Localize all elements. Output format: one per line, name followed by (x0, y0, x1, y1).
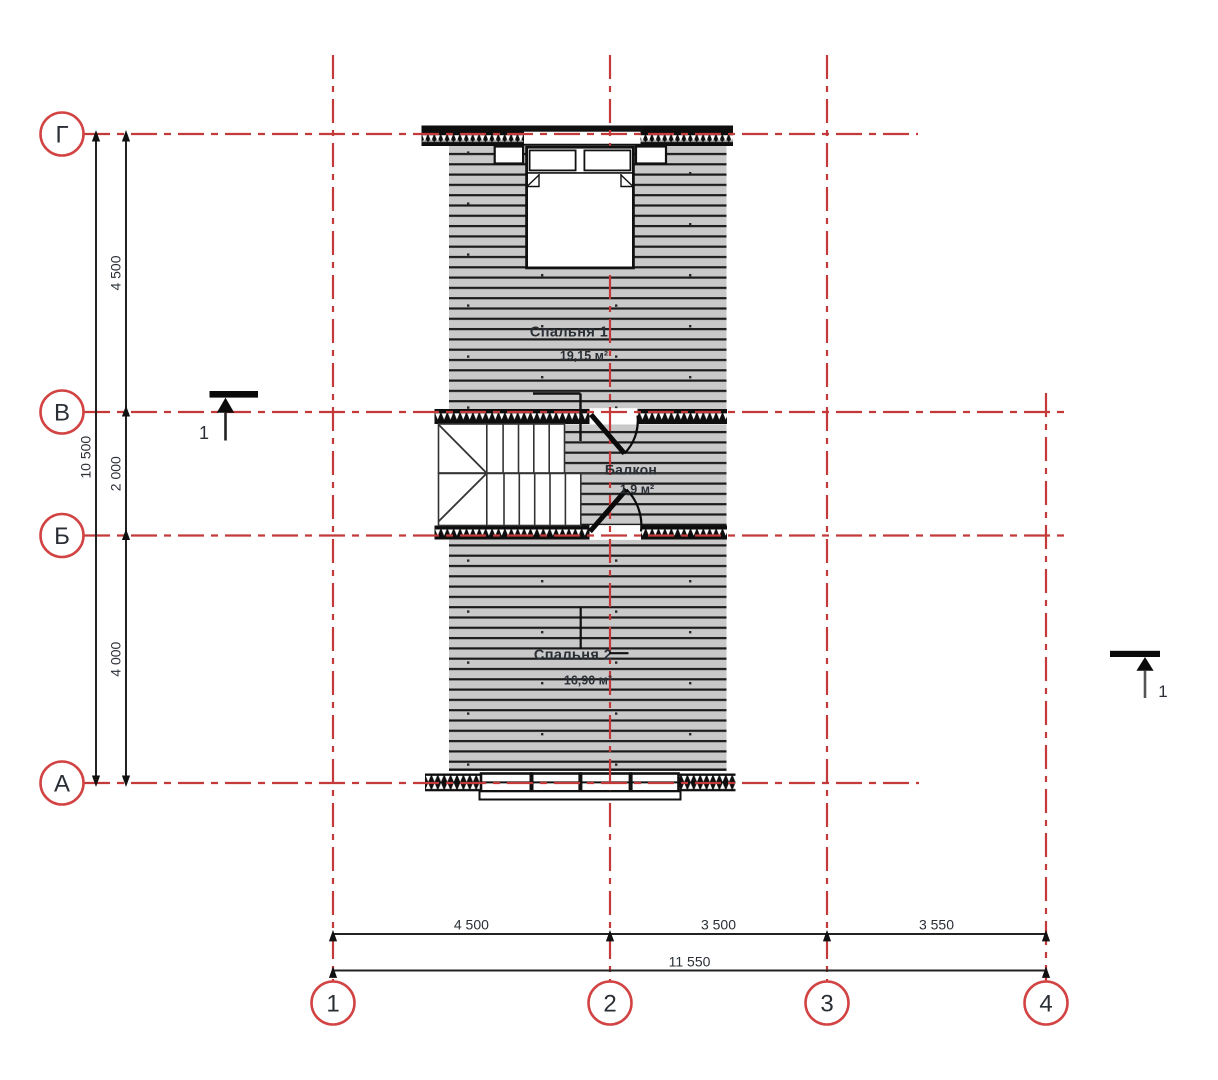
svg-text:2: 2 (603, 991, 616, 1018)
svg-text:1: 1 (1158, 682, 1167, 701)
svg-text:11 550: 11 550 (669, 954, 711, 970)
svg-text:Спальня 2: Спальня 2 (534, 648, 612, 664)
svg-text:4 500: 4 500 (454, 917, 489, 933)
svg-text:4 500: 4 500 (108, 255, 124, 290)
svg-text:Спальня 1: Спальня 1 (530, 325, 608, 341)
svg-text:16,90 м²: 16,90 м² (564, 674, 612, 688)
svg-text:4: 4 (1039, 991, 1052, 1018)
svg-text:3 550: 3 550 (919, 917, 954, 933)
svg-text:19,15 м²: 19,15 м² (560, 349, 608, 363)
svg-text:Б: Б (54, 523, 70, 550)
svg-text:Г: Г (56, 122, 69, 149)
svg-text:3 500: 3 500 (701, 917, 736, 933)
svg-text:2 000: 2 000 (108, 456, 124, 491)
svg-text:4 000: 4 000 (108, 641, 124, 676)
svg-text:1: 1 (326, 991, 339, 1018)
svg-text:1,9 м²: 1,9 м² (620, 483, 654, 497)
svg-text:1: 1 (199, 423, 209, 443)
svg-text:Балкон: Балкон (605, 462, 657, 478)
svg-text:10 500: 10 500 (78, 436, 94, 479)
svg-text:А: А (54, 771, 70, 798)
svg-text:3: 3 (820, 991, 833, 1018)
svg-text:В: В (54, 400, 70, 427)
